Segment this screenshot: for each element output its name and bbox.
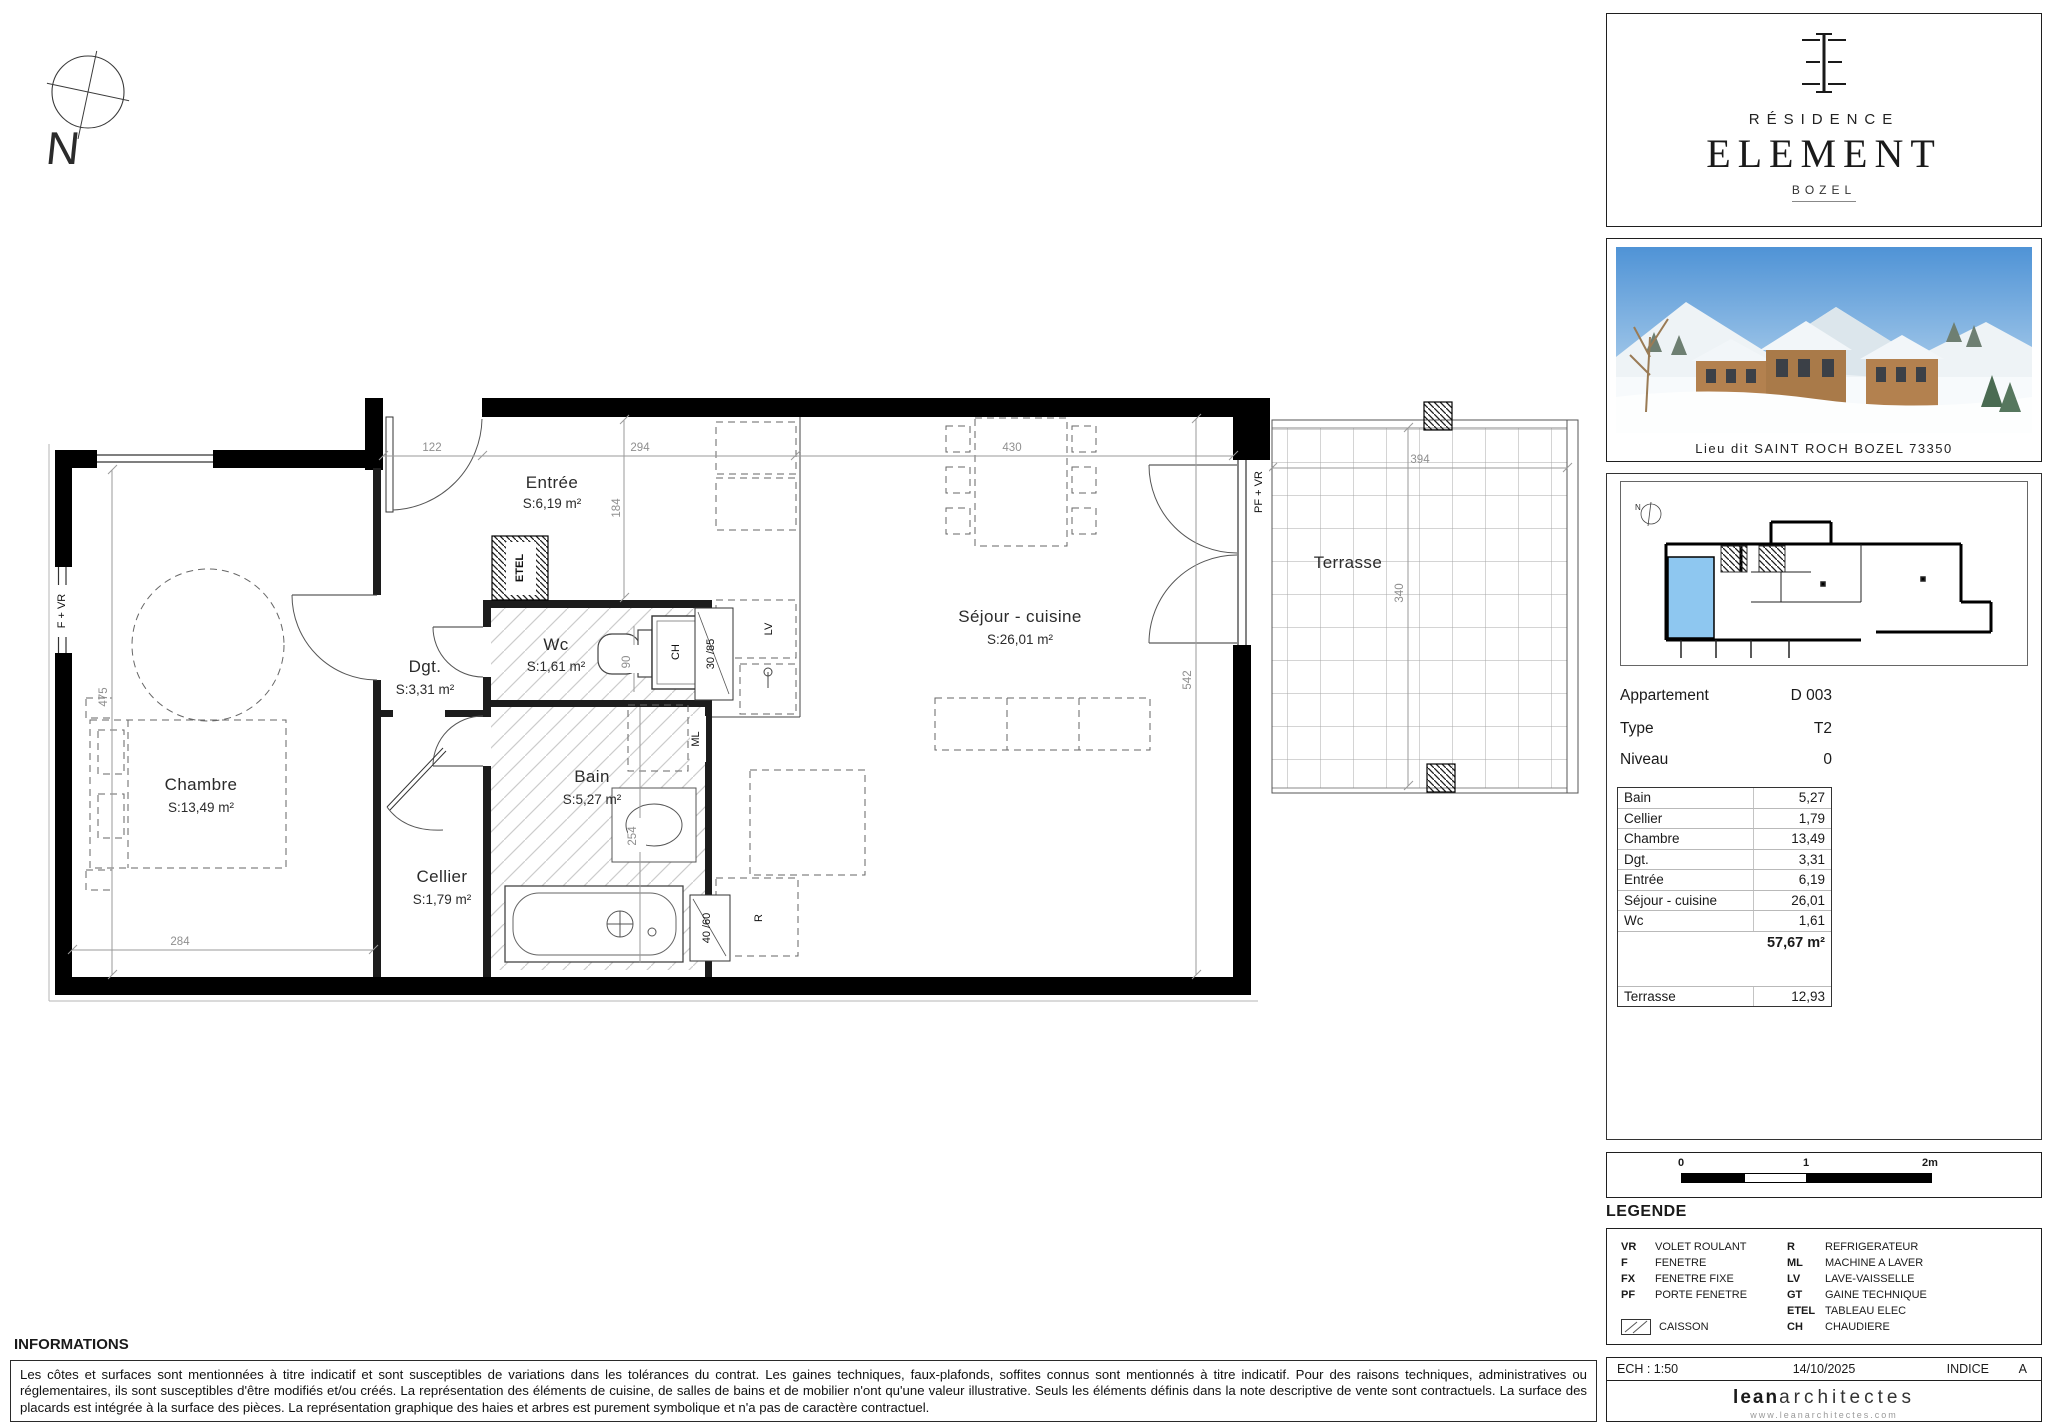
tag-30-85: 30 /85 (705, 639, 717, 670)
total-area: 57,67 m² (1767, 935, 1825, 951)
label-wc: Wc (543, 635, 568, 654)
floorplan-sheet: { "compass": { "label": "N" }, "plan": {… (0, 0, 2048, 1427)
titleblock: ECH : 1:50 14/10/2025 INDICE A leanarchi… (1606, 1357, 2042, 1422)
row-value: 12,93 (1791, 989, 1825, 1004)
areas-table: Bain5,27 Cellier1,79 Chambre13,49 Dgt.3,… (1617, 787, 1832, 1007)
row-value: 13,49 (1791, 831, 1825, 846)
logo-box: RÉSIDENCE ELEMENT BOZEL (1606, 13, 2042, 227)
highlighted-unit (1668, 557, 1714, 638)
floor-plan-drawing: N (0, 0, 1600, 1427)
photo-caption: Lieu dit SAINT ROCH BOZEL 73350 (1607, 441, 2041, 456)
legend-item: CHCHAUDIERE (1787, 1321, 1890, 1333)
scale-2m: 2m (1922, 1157, 1938, 1169)
sofa (935, 698, 1150, 750)
dim-294: 294 (630, 442, 650, 454)
locator-plan: N (1621, 482, 2027, 665)
tag-40-60: 40 /60 (701, 913, 713, 944)
informations-box: Les côtes et surfaces sont mentionnées à… (10, 1360, 1597, 1422)
tag-ch: CH (670, 644, 682, 660)
caisson-icon (1621, 1319, 1651, 1335)
legend-box: VRVOLET ROULANT FFENETRE FXFENETRE FIXE … (1606, 1228, 2042, 1345)
field-niveau: Niveau 0 (1620, 747, 1832, 773)
table-row: Cellier1,79 (1618, 809, 1831, 830)
terrasse-row: Terrasse 12,93 (1618, 987, 1831, 1007)
row-value: 26,01 (1791, 893, 1825, 908)
dim-475: 475 (98, 687, 110, 706)
row-label: Dgt. (1624, 852, 1649, 867)
field-appartement: Appartement D 003 (1620, 683, 1832, 709)
row-label: Wc (1624, 913, 1644, 928)
row-value: 3,31 (1799, 852, 1825, 867)
area-bain: S:5,27 m² (563, 792, 622, 807)
firm-logo: leanarchitectes (1607, 1387, 2041, 1409)
legend-item: RREFRIGERATEUR (1787, 1241, 1918, 1253)
field-value: T2 (1814, 720, 1832, 738)
tag-ml: ML (690, 731, 702, 746)
legend-item: PFPORTE FENETRE (1621, 1289, 1747, 1301)
photo-box: Lieu dit SAINT ROCH BOZEL 73350 (1606, 238, 2042, 462)
row-value: 6,19 (1799, 872, 1825, 887)
legend-item: LVLAVE-VAISSELLE (1787, 1273, 1914, 1285)
tag-f-vr: F + VR (56, 594, 68, 629)
row-label: Entrée (1624, 872, 1664, 887)
indice-value: A (2019, 1362, 2027, 1376)
total-row: 57,67 m² (1618, 932, 1831, 987)
tag-lv: LV (763, 622, 775, 635)
informations-text: Les côtes et surfaces sont mentionnées à… (20, 1367, 1587, 1416)
dining-table (975, 418, 1067, 546)
table-row: Bain5,27 (1618, 788, 1831, 809)
row-label: Séjour - cuisine (1624, 893, 1717, 908)
label-bain: Bain (574, 767, 610, 786)
tag-pf-vr: PF + VR (1253, 471, 1265, 513)
logo-name: ELEMENT (1607, 130, 2041, 177)
legend-item: MLMACHINE A LAVER (1787, 1257, 1923, 1269)
dim-340: 340 (1394, 583, 1406, 602)
table-row: Wc1,61 (1618, 911, 1831, 932)
legend-item: FXFENETRE FIXE (1621, 1273, 1734, 1285)
row-label: Chambre (1624, 831, 1680, 846)
label-entree: Entrée (526, 473, 579, 492)
legend-item: GTGAINE TECHNIQUE (1787, 1289, 1927, 1301)
row-label: Bain (1624, 790, 1651, 805)
legend-title: LEGENDE (1606, 1203, 1687, 1221)
informations-title: INFORMATIONS (14, 1336, 129, 1353)
legend-item: ETELTABLEAU ELEC (1787, 1305, 1906, 1317)
area-sejour: S:26,01 m² (987, 632, 1054, 647)
dim-394: 394 (1410, 454, 1430, 466)
field-value: 0 (1823, 751, 1832, 769)
bathtub (505, 886, 683, 962)
scalebar-box: 0 1 2m (1606, 1152, 2042, 1198)
scale-0: 0 (1678, 1157, 1684, 1169)
locator-compass-icon: N (1635, 502, 1661, 526)
field-type: Type T2 (1620, 716, 1832, 742)
tag-etel: ETEL (514, 554, 526, 582)
area-wc: S:1,61 m² (527, 659, 586, 674)
row-value: 1,61 (1799, 913, 1825, 928)
area-entree: S:6,19 m² (523, 496, 582, 511)
row-value: 1,79 (1799, 811, 1825, 826)
label-terrasse: Terrasse (1314, 553, 1382, 572)
dim-430: 430 (1002, 442, 1021, 454)
dim-90: 90 (621, 656, 633, 669)
dim-122: 122 (422, 442, 441, 454)
label-sejour: Séjour - cuisine (958, 607, 1082, 626)
scalebar-segment (1681, 1173, 1744, 1183)
compass-n-label: N (44, 122, 83, 174)
vanity (612, 788, 696, 862)
field-label: Appartement (1620, 687, 1709, 705)
legend-item: FFENETRE (1621, 1257, 1706, 1269)
row-label: Terrasse (1624, 989, 1676, 1004)
north-compass-icon: N (37, 42, 138, 174)
table-row: Entrée6,19 (1618, 870, 1831, 891)
field-label: Niveau (1620, 751, 1668, 769)
row-label: Cellier (1624, 811, 1662, 826)
table-row: Chambre13,49 (1618, 829, 1831, 850)
dim-184: 184 (611, 498, 623, 518)
scalebar-segment (1807, 1173, 1932, 1183)
label-chambre: Chambre (165, 775, 238, 794)
locator-box: N (1620, 481, 2028, 666)
area-dgt: S:3,31 m² (396, 682, 455, 697)
table-row: Dgt.3,31 (1618, 850, 1831, 871)
coffee-table (750, 770, 865, 875)
bed (90, 720, 286, 868)
area-cellier: S:1,79 m² (413, 892, 472, 907)
caisson-block (1424, 402, 1452, 430)
caisson-block (1427, 764, 1455, 792)
label-cellier: Cellier (417, 867, 468, 886)
residence-photo (1616, 247, 2032, 433)
field-value: D 003 (1791, 687, 1832, 705)
legend-item-caisson: CAISSON (1659, 1321, 1709, 1333)
dim-254: 254 (627, 826, 639, 846)
firm-name-light: architectes (1779, 1387, 1915, 1408)
logo-city: BOZEL (1792, 183, 1856, 202)
svg-text:N: N (1635, 503, 1641, 512)
logo-residence: RÉSIDENCE (1607, 111, 2041, 128)
label-dgt: Dgt. (409, 657, 442, 676)
firm-website: www.leanarchitectes.com (1607, 1410, 2041, 1420)
scale-1: 1 (1803, 1157, 1809, 1169)
room-labels: Entrée S:6,19 m² Chambre S:13,49 m² Dgt.… (165, 473, 1383, 907)
legend-item: VRVOLET ROULANT (1621, 1241, 1747, 1253)
dim-542: 542 (1182, 670, 1194, 689)
area-chambre: S:13,49 m² (168, 800, 235, 815)
field-label: Type (1620, 720, 1654, 738)
titleblock-top-row: ECH : 1:50 14/10/2025 INDICE A (1607, 1358, 2041, 1381)
element-monogram-icon (1796, 28, 1852, 98)
tag-r: R (753, 914, 765, 922)
dim-284: 284 (170, 936, 190, 948)
scalebar-segment (1744, 1173, 1807, 1183)
firm-name-bold: lean (1733, 1387, 1779, 1408)
row-value: 5,27 (1799, 790, 1825, 805)
table-row: Séjour - cuisine26,01 (1618, 891, 1831, 912)
indice-label: INDICE (1947, 1362, 1989, 1376)
